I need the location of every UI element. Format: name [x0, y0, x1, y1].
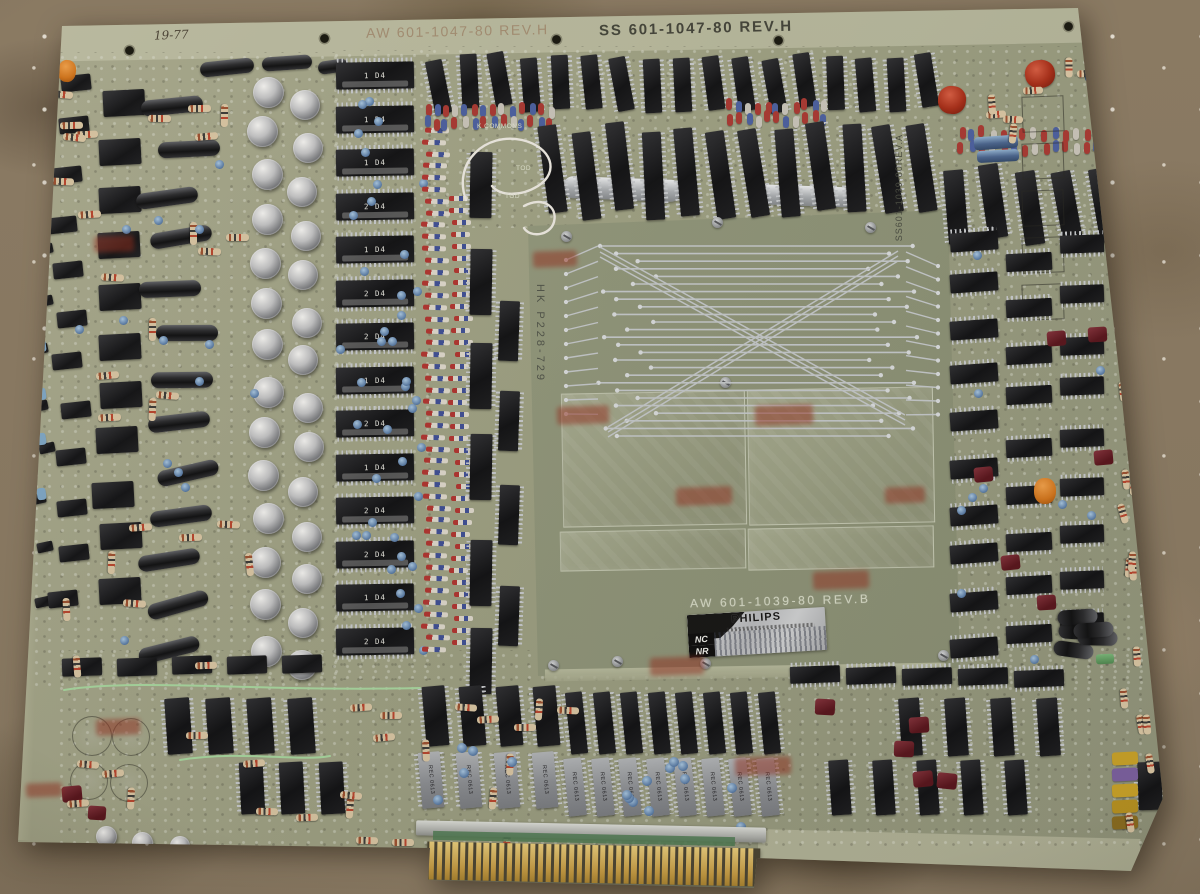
philips-sticker: PHILIPS NC NR: [687, 607, 827, 658]
hole: [123, 44, 136, 57]
component-bead: [451, 117, 457, 129]
diode: [422, 234, 446, 240]
resistor: [188, 105, 211, 112]
resistor: [1023, 87, 1043, 95]
component-bead: [1112, 751, 1139, 765]
resistor: [1008, 123, 1017, 144]
resistor: [1140, 473, 1148, 493]
component-bead: [802, 112, 808, 124]
transistor-can: [288, 260, 318, 290]
component-bead: [1085, 129, 1091, 141]
gold-finger: [623, 846, 629, 884]
ic-chip: [1006, 575, 1053, 595]
resistor: [1117, 503, 1129, 524]
transistor-can: [249, 417, 280, 448]
ceramic-disc-capacitor: [354, 129, 363, 138]
resistor: [63, 133, 87, 142]
ic-chip: [1060, 235, 1105, 255]
relay-block: [60, 400, 92, 419]
component-bead: [755, 103, 761, 115]
relay-block: [52, 260, 84, 279]
ic-chip: [949, 363, 998, 385]
ceramic-ic-chip: REC 0613: [563, 757, 587, 817]
diode: [426, 328, 450, 334]
component-bead: [783, 116, 789, 128]
ic-chip-label: REC 0613: [591, 757, 615, 817]
resistor: [1157, 678, 1167, 699]
capacitor-axial: [147, 410, 210, 433]
ceramic-disc-capacitor: [408, 404, 417, 413]
ic-chip: [949, 409, 998, 431]
ic-chip: [459, 54, 479, 109]
transistor-can: [253, 503, 284, 534]
gold-finger: [553, 844, 559, 882]
diode: [423, 552, 447, 558]
ic-chip: [498, 586, 520, 647]
component-bead: [490, 104, 496, 116]
diode: [426, 446, 450, 452]
component-bead: [549, 107, 555, 119]
ic-chip-label: REC 0613: [563, 757, 587, 817]
relay-block: [227, 655, 268, 674]
ic-chip: [246, 697, 275, 755]
gold-finger: [608, 845, 614, 883]
resistor: [1130, 475, 1139, 495]
transistor-can: [251, 288, 282, 319]
ic-chip: [673, 57, 693, 112]
ic-chip: [498, 300, 520, 361]
component-bead: [519, 102, 525, 114]
ic-chip-label: REC 0613: [701, 757, 725, 817]
ic-chip: [421, 685, 449, 747]
ceramic-ic-chip: REC 0613: [701, 757, 725, 817]
ic-chip: [1006, 344, 1053, 364]
ceramic-disc-capacitor: [408, 562, 418, 572]
ceramic-disc-capacitor: [1030, 655, 1039, 664]
ic-chip: [498, 485, 520, 546]
diode: [424, 529, 448, 535]
resistor: [122, 599, 145, 608]
resistor: [1158, 314, 1170, 335]
ic-chip: [702, 691, 725, 754]
ic-chip: [1060, 285, 1105, 305]
resistor: [1157, 816, 1169, 837]
resistor: [60, 121, 83, 129]
resistor: [1109, 115, 1129, 123]
diode: [452, 244, 471, 249]
ic-chip: [914, 52, 939, 108]
ceramic-disc-capacitor: [367, 517, 377, 527]
ceramic-ic-chip: REC 0613: [591, 757, 615, 817]
resistor: [422, 740, 430, 762]
ic-chip: [905, 123, 938, 213]
gold-finger: [646, 846, 652, 884]
diode: [425, 293, 449, 299]
ceramic-disc-capacitor: [1058, 500, 1067, 509]
diode: [422, 647, 446, 653]
component-bead: [1112, 767, 1139, 781]
gold-finger: [662, 846, 668, 884]
transistor-can: [252, 329, 283, 360]
transistor-can: [292, 522, 322, 552]
ceramic-disc-capacitor: [215, 160, 224, 169]
ic-chip-shine: [342, 80, 408, 87]
ic-chip: [605, 121, 634, 211]
gold-finger: [685, 847, 691, 885]
ceramic-disc-capacitor: [120, 636, 130, 646]
component-bead: [1117, 127, 1123, 139]
component-bead: [726, 98, 732, 110]
component-bead: [1106, 127, 1112, 139]
gold-finger: [592, 845, 598, 883]
diode: [421, 434, 445, 440]
relay-block: [36, 145, 54, 158]
component-bead: [736, 101, 742, 113]
ic-chip: [944, 697, 969, 756]
ic-chip: [486, 51, 512, 107]
resistor: [1142, 714, 1151, 735]
ic-chip: [469, 343, 492, 409]
ic-chip: [737, 128, 770, 218]
resistor: [346, 797, 355, 819]
gold-finger: [732, 848, 738, 886]
transistor-can: [252, 204, 283, 235]
ic-chip: [1006, 532, 1053, 552]
diode: [426, 635, 450, 641]
diode: [423, 163, 447, 169]
ic-chip: [990, 697, 1015, 756]
diode: [422, 175, 446, 181]
diode: [425, 316, 449, 322]
resistor: [51, 177, 74, 185]
resistor: [1077, 70, 1097, 78]
gold-finger: [716, 848, 722, 886]
ceramic-disc-capacitor: [118, 316, 127, 325]
resistor: [194, 661, 216, 669]
relay-block: [32, 342, 50, 355]
diode: [448, 376, 467, 381]
gold-finger: [468, 842, 474, 880]
transistor-can: [291, 221, 321, 251]
ic-chip: [1004, 759, 1028, 815]
ic-chip: [730, 691, 753, 754]
resistor: [129, 523, 152, 532]
diode: [451, 328, 470, 333]
ic-chip-shine: [342, 428, 408, 435]
gold-finger: [693, 847, 699, 885]
gold-finger: [444, 842, 450, 880]
component-bead: [480, 105, 486, 117]
ic-chip: [239, 761, 266, 814]
component-bead: [813, 110, 819, 122]
component-bead: [435, 104, 441, 116]
diode: [451, 532, 470, 537]
ic-chip: [846, 666, 897, 685]
relay-block: [102, 89, 145, 117]
resistor: [98, 413, 121, 421]
component-bead: [1084, 142, 1090, 154]
ic-chip: 2 D4: [336, 627, 414, 655]
capacitor: [912, 770, 934, 788]
resistor: [194, 132, 218, 141]
component-bead: [461, 104, 467, 116]
ic-chip-shine: [342, 385, 408, 392]
capacitor-axial: [149, 504, 213, 528]
ic-chip: [580, 55, 603, 110]
gold-finger: [514, 843, 520, 881]
ic-chip: [469, 628, 492, 694]
transistor-can: [288, 477, 318, 507]
gold-finger: [429, 842, 435, 880]
gold-finger: [569, 844, 575, 882]
capacitor-axial: [146, 589, 210, 621]
ceramic-disc-capacitor: [979, 484, 988, 493]
resistor: [488, 788, 497, 811]
resistor: [198, 247, 221, 255]
diode: [454, 316, 473, 321]
ceramic-disc-capacitor: [205, 340, 215, 350]
relay-block: [55, 447, 87, 466]
resistor: [242, 759, 264, 768]
component-bead: [801, 98, 807, 110]
diode: [425, 198, 449, 204]
component-bead: [1114, 142, 1120, 154]
resistor: [1151, 353, 1163, 374]
diode: [423, 576, 447, 582]
component-bead: [736, 112, 742, 124]
relay-block: [282, 654, 323, 673]
screw: [548, 660, 559, 671]
diode: [426, 564, 450, 570]
component-bead: [472, 104, 478, 116]
capacitor: [1088, 327, 1108, 343]
ic-chip: [1060, 478, 1105, 498]
diode: [427, 505, 451, 511]
component-bead: [434, 119, 440, 131]
circuit-board: 1 D41 D41 D42 D41 D42 D42 D41 D42 D41 D4…: [0, 0, 1200, 894]
red-ink-stamp: [676, 486, 733, 506]
capacitor-electrolytic: [1084, 38, 1117, 86]
red-ink-stamp: [885, 486, 926, 503]
capacitor: [894, 740, 915, 757]
tantalum-capacitor: [1023, 58, 1057, 90]
capacitor: [1046, 330, 1066, 346]
screw: [612, 656, 623, 667]
diode: [422, 364, 446, 370]
ceramic-disc-capacitor: [1087, 511, 1096, 520]
diode: [451, 232, 470, 237]
transistor-can: [170, 836, 190, 856]
relay-block: [51, 352, 83, 371]
component-bead: [36, 149, 47, 162]
relay-block: [98, 283, 141, 311]
gold-finger: [639, 846, 645, 884]
ceramic-disc-capacitor: [973, 251, 982, 260]
gold-finger: [538, 844, 544, 882]
gold-finger: [740, 848, 746, 886]
ic-chip: [960, 759, 984, 815]
component-bead: [530, 103, 536, 115]
relay-block: [27, 90, 45, 103]
component-bead: [36, 487, 47, 500]
resistor: [1140, 501, 1150, 522]
ic-chip: [949, 543, 998, 565]
diode: [423, 399, 447, 405]
ic-chip: [958, 668, 1009, 687]
ceramic-disc-capacitor: [181, 483, 190, 492]
shield-plate: [748, 525, 935, 570]
component-bead: [1074, 143, 1080, 155]
ic-chip: [1006, 251, 1053, 271]
resistor: [108, 551, 116, 574]
capacitor-orange: [1034, 478, 1056, 504]
component-bead: [747, 113, 753, 125]
capacitor-axial: [199, 57, 254, 78]
diode: [425, 423, 449, 429]
diode: [454, 616, 473, 621]
resistor: [1003, 115, 1023, 123]
relay-block: [99, 381, 142, 409]
diode: [422, 305, 446, 311]
ic-chip-shine: [342, 254, 408, 261]
capacitor: [937, 772, 959, 790]
component-bead: [960, 127, 966, 139]
screw: [865, 222, 876, 233]
resistor: [179, 533, 202, 541]
gold-finger: [615, 845, 621, 883]
ic-chip: [469, 249, 492, 315]
transistor-can: [247, 116, 278, 147]
empty-component-outline: [1021, 95, 1064, 132]
ceramic-disc-capacitor: [467, 746, 477, 756]
diode: [426, 541, 450, 547]
ic-chip-shine: [342, 602, 408, 609]
ic-chip: [1060, 428, 1105, 448]
board-left-edge: [5, 28, 54, 840]
relay-block: [31, 399, 49, 412]
resistor: [1139, 491, 1147, 511]
green-jumper-wire: [64, 685, 420, 690]
component-bead: [978, 125, 984, 137]
gold-finger: [709, 847, 715, 885]
ic-chip: [537, 124, 568, 214]
ic-chip: [164, 697, 193, 755]
component-bead: [36, 291, 47, 304]
diode: [424, 458, 448, 464]
gold-finger: [631, 846, 637, 884]
ic-chip: [949, 230, 998, 252]
gold-finger: [576, 845, 582, 883]
transistor-can: [293, 393, 323, 423]
ic-chip: [319, 761, 346, 814]
transistor-can: [248, 460, 279, 491]
ic-chip: [757, 691, 780, 754]
hole: [318, 32, 331, 45]
ic-chip: [469, 540, 492, 606]
ic-chip: 1 D4: [336, 148, 414, 176]
ceramic-disc-capacitor: [396, 290, 405, 299]
transistor-can: [290, 90, 320, 120]
resistor: [380, 712, 402, 719]
resistor: [1066, 57, 1073, 77]
gold-finger: [654, 846, 660, 884]
ic-chip: 2 D4: [336, 192, 414, 220]
ceramic-disc-capacitor: [373, 180, 382, 189]
ic-chip: [469, 434, 492, 500]
component-bead: [727, 114, 733, 126]
ic-chip: [1006, 298, 1053, 318]
ic-chip-shine: [342, 341, 408, 348]
ceramic-disc-capacitor: [974, 389, 983, 398]
component-bead: [756, 116, 762, 128]
transistor-can: [132, 832, 153, 853]
board-bottom-edge: [758, 829, 1141, 873]
gold-finger: [701, 847, 707, 885]
ic-chip: [886, 58, 906, 113]
diode: [421, 281, 445, 287]
transistor-can: [293, 133, 323, 163]
transistor-can: [252, 159, 283, 190]
gold-finger: [491, 843, 497, 881]
ic-chip: [287, 697, 316, 755]
component-bead: [1093, 140, 1099, 152]
ic-chip: [842, 123, 866, 212]
gold-finger: [483, 843, 489, 881]
ic-chip: [1006, 385, 1053, 405]
diode: [426, 517, 450, 523]
ic-chip: [855, 57, 877, 112]
ic-chip: [592, 691, 615, 754]
ic-chip: [872, 759, 896, 815]
ic-chip: [902, 667, 953, 686]
diode: [426, 387, 450, 393]
relay-block: [98, 185, 141, 213]
component-bead: [36, 339, 47, 352]
gold-finger: [748, 848, 754, 886]
screw: [720, 377, 731, 388]
component-bead: [821, 100, 827, 112]
capacitor-axial: [262, 54, 313, 71]
gold-finger: [724, 848, 730, 886]
diode: [422, 493, 446, 499]
ic-chip: [1060, 571, 1105, 591]
resistor: [355, 837, 377, 845]
diode: [450, 424, 469, 429]
ic-chip: [916, 759, 940, 815]
ceramic-disc-capacitor: [360, 148, 369, 157]
red-ink-stamp: [26, 782, 62, 797]
ic-chip: [608, 56, 635, 112]
component-bead: [36, 240, 47, 253]
diode: [423, 600, 447, 606]
relay-block: [56, 499, 88, 518]
resistor: [256, 807, 278, 815]
ic-chip: [1014, 669, 1065, 688]
resistor: [226, 234, 249, 241]
relay-block: [92, 480, 135, 508]
resistor: [350, 703, 372, 711]
ceramic-disc-capacitor: [412, 396, 422, 406]
diode: [425, 269, 449, 275]
ceramic-disc-capacitor: [163, 459, 172, 468]
handwritten-date: 19-77: [154, 27, 189, 42]
diode: [426, 151, 450, 157]
ceramic-disc-capacitor: [414, 603, 423, 612]
component-bead: [1104, 142, 1110, 154]
gold-finger: [452, 842, 458, 880]
ic-chip: [571, 131, 601, 221]
ceramic-disc-capacitor: [398, 457, 407, 466]
